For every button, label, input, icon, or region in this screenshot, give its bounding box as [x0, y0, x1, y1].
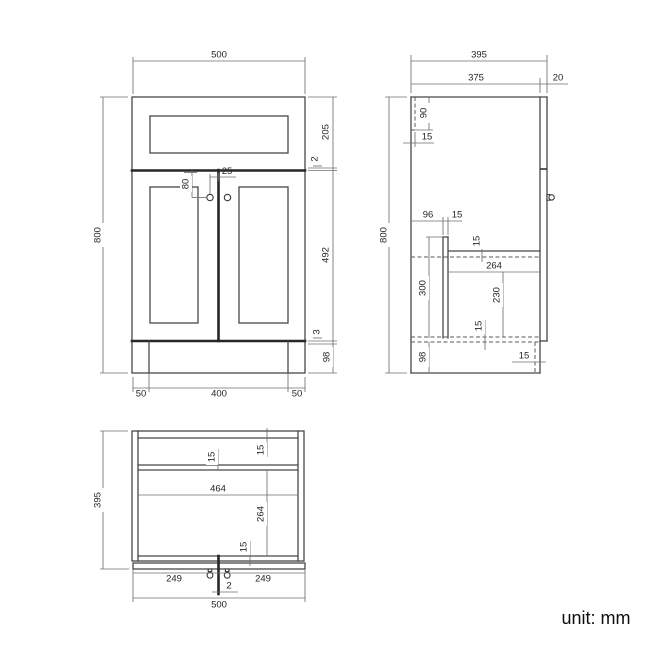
- dim-front-plinth-inset-left: 50: [136, 389, 147, 400]
- dim-front-overall-width: 500: [211, 50, 227, 61]
- side-view-drawing: 395 375 20 800 90 15 96 15 300 98: [378, 50, 568, 374]
- dim-side-shelf-back-offset: 96: [423, 210, 434, 221]
- dim-front-drawer-door-gap: 2: [310, 156, 321, 161]
- front-view-drawing: 500 800 205 2 492 3 98 50: [92, 50, 337, 400]
- dim-plan-internal-width: 464: [210, 484, 226, 495]
- dim-side-drawer-back-gap: 15: [422, 132, 433, 143]
- dim-plan-door-width-right: 249: [255, 574, 271, 585]
- dim-side-door-thickness: 20: [553, 73, 564, 84]
- dim-side-partition-thickness: 15: [452, 210, 463, 221]
- dim-front-knob-offset: 25: [222, 166, 233, 177]
- dim-plan-door-gap: 2: [226, 581, 231, 592]
- dim-plan-back-panel-thickness: 15: [256, 445, 267, 456]
- dim-front-plinth-height: 98: [322, 352, 333, 363]
- dim-front-door-height: 492: [321, 247, 332, 263]
- dim-side-shelf-thickness: 15: [472, 236, 483, 247]
- dim-side-body-depth: 375: [468, 73, 484, 84]
- dim-side-overall-height: 800: [379, 227, 390, 243]
- drawing-canvas: 500 800 205 2 492 3 98 50: [0, 0, 650, 650]
- door-knob-icon: [225, 569, 229, 572]
- dim-front-drawer-height: 205: [321, 124, 332, 140]
- dim-plan-internal-depth: 264: [256, 506, 267, 522]
- dim-front-plinth-inset-right: 50: [292, 389, 303, 400]
- dim-side-plinth-recess: 15: [519, 351, 530, 362]
- dim-plan-overall-depth: 395: [93, 492, 104, 508]
- unit-label: unit: mm: [561, 608, 630, 628]
- dim-front-plinth-width: 400: [211, 389, 227, 400]
- door-knob-icon: [208, 569, 212, 572]
- dim-side-shelf-clearance: 230: [492, 287, 503, 303]
- dim-front-knob-drop: 80: [181, 179, 192, 190]
- front-left-door-panel: [150, 187, 198, 323]
- front-left-knob-icon: [207, 194, 213, 200]
- dim-side-plinth-height: 98: [418, 352, 429, 363]
- dim-plan-door-width-left: 249: [166, 574, 182, 585]
- plan-view-drawing: 395 15 15 464 264 15 249 249 2 500: [92, 428, 305, 611]
- dim-side-partition-height: 300: [418, 280, 429, 296]
- dim-plan-bottom-rail-thickness: 15: [239, 542, 250, 553]
- front-right-door-panel: [239, 187, 288, 323]
- dim-side-overall-depth: 395: [471, 50, 487, 61]
- dim-front-overall-height: 800: [93, 227, 104, 243]
- dim-side-shelf-depth: 264: [486, 261, 502, 272]
- dim-side-bottom-shelf-thickness: 15: [474, 321, 485, 332]
- dim-front-door-bottom-gap: 3: [312, 329, 323, 334]
- side-knob-icon: [549, 195, 554, 200]
- dim-plan-top-rail-thickness: 15: [207, 452, 218, 463]
- dim-side-drawer-box-height: 90: [419, 108, 430, 119]
- dim-plan-overall-width: 500: [211, 600, 227, 611]
- front-drawer-panel: [150, 116, 288, 153]
- front-right-knob-icon: [224, 194, 230, 200]
